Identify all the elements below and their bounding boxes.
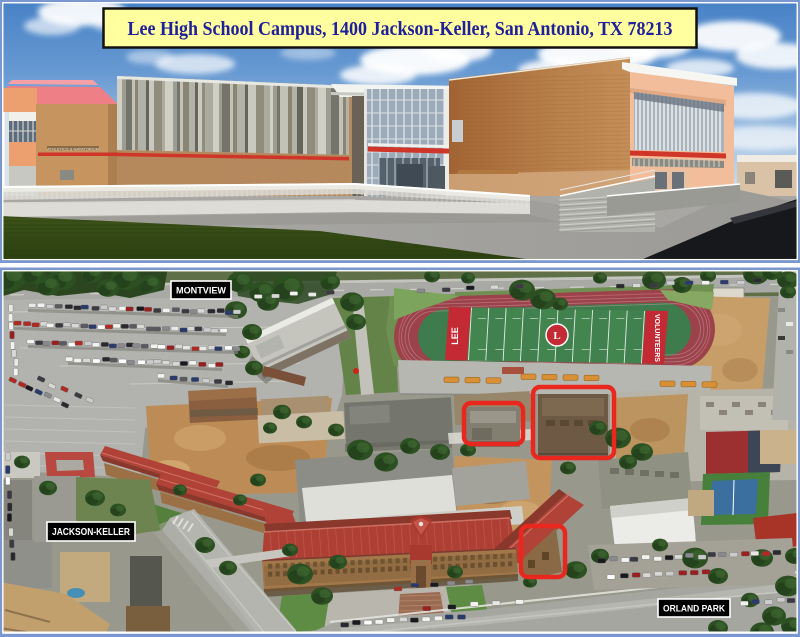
svg-text:JACKSON-KELLER: JACKSON-KELLER — [52, 527, 131, 538]
svg-text:Lee High School Campus, 1400 J: Lee High School Campus, 1400 Jackson-Kel… — [128, 18, 673, 40]
svg-text:VOLUNTEERS: VOLUNTEERS — [653, 314, 662, 362]
svg-text:L: L — [553, 330, 560, 342]
svg-text:ORLAND PARK: ORLAND PARK — [663, 603, 725, 614]
svg-text:ATHLETICS & NATATORIUM: ATHLETICS & NATATORIUM — [47, 147, 99, 152]
svg-text:LEE: LEE — [450, 327, 460, 345]
svg-text:MONTVIEW: MONTVIEW — [176, 285, 226, 296]
